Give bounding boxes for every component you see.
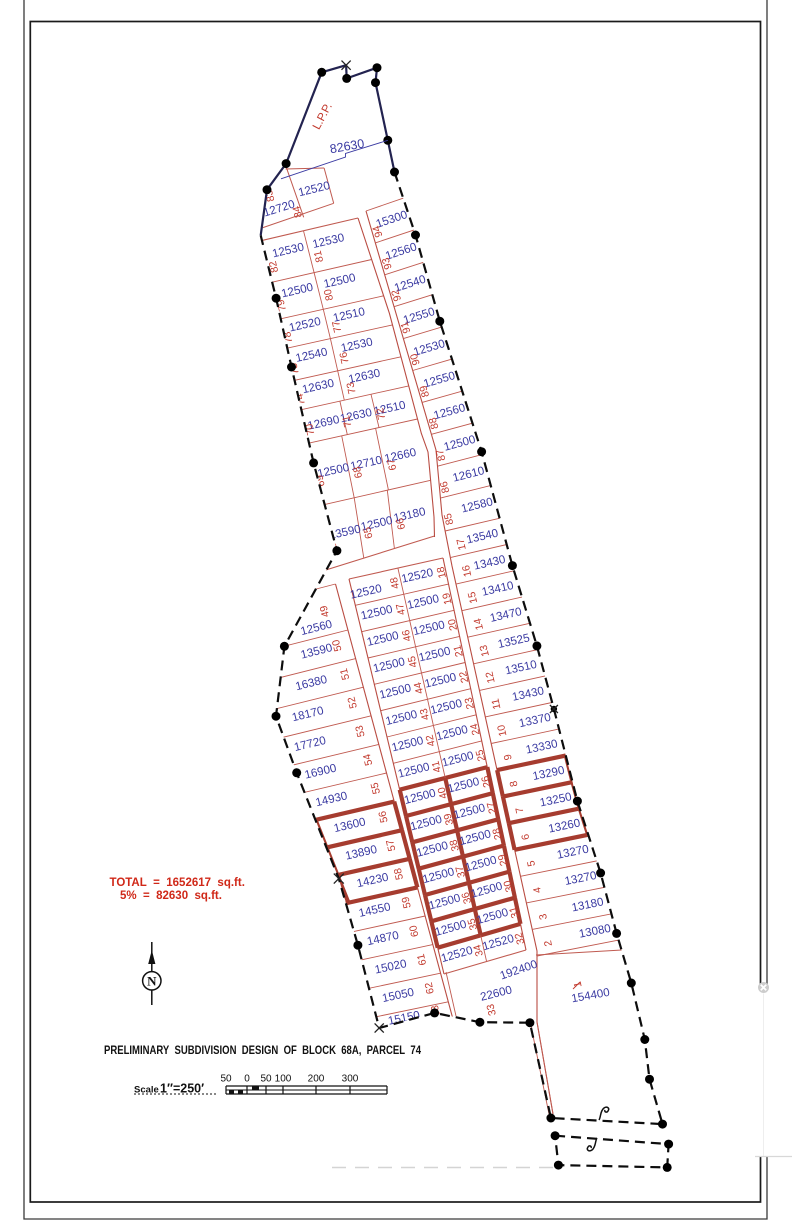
svg-text:50: 50 xyxy=(220,1074,232,1085)
svg-text:1″=250′: 1″=250′ xyxy=(160,1081,204,1095)
svg-text:N: N xyxy=(147,973,157,988)
svg-text:200: 200 xyxy=(308,1074,325,1085)
svg-text:TOTAL = 1652617 sq.ft.: TOTAL = 1652617 sq.ft. xyxy=(110,877,245,889)
svg-text:5% = 82630 sq.ft.: 5% = 82630 sq.ft. xyxy=(120,890,222,902)
svg-text:0: 0 xyxy=(244,1074,250,1085)
svg-text:100: 100 xyxy=(275,1074,292,1085)
svg-text:PRELIMINARY SUBDIVISION DESI: PRELIMINARY SUBDIVISION DESIGN OF BLOCK … xyxy=(104,1044,421,1057)
svg-text:50: 50 xyxy=(260,1074,272,1085)
svg-text:300: 300 xyxy=(342,1074,359,1085)
